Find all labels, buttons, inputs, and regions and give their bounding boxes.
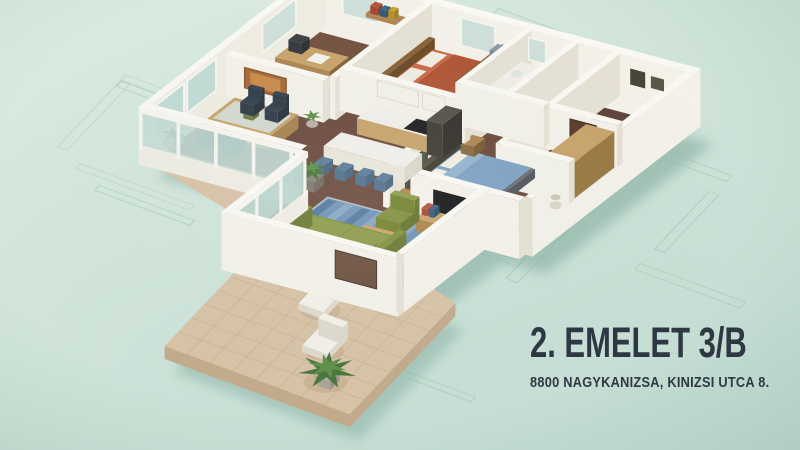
floor-title: 2. EMELET 3/B (530, 322, 747, 365)
floorplan-render: 2. EMELET 3/B 8800 NAGYKANIZSA, KINIZSI … (0, 0, 800, 450)
caption: 2. EMELET 3/B 8800 NAGYKANIZSA, KINIZSI … (530, 322, 800, 391)
address: 8800 NAGYKANIZSA, KINIZSI UTCA 8. (530, 375, 795, 391)
